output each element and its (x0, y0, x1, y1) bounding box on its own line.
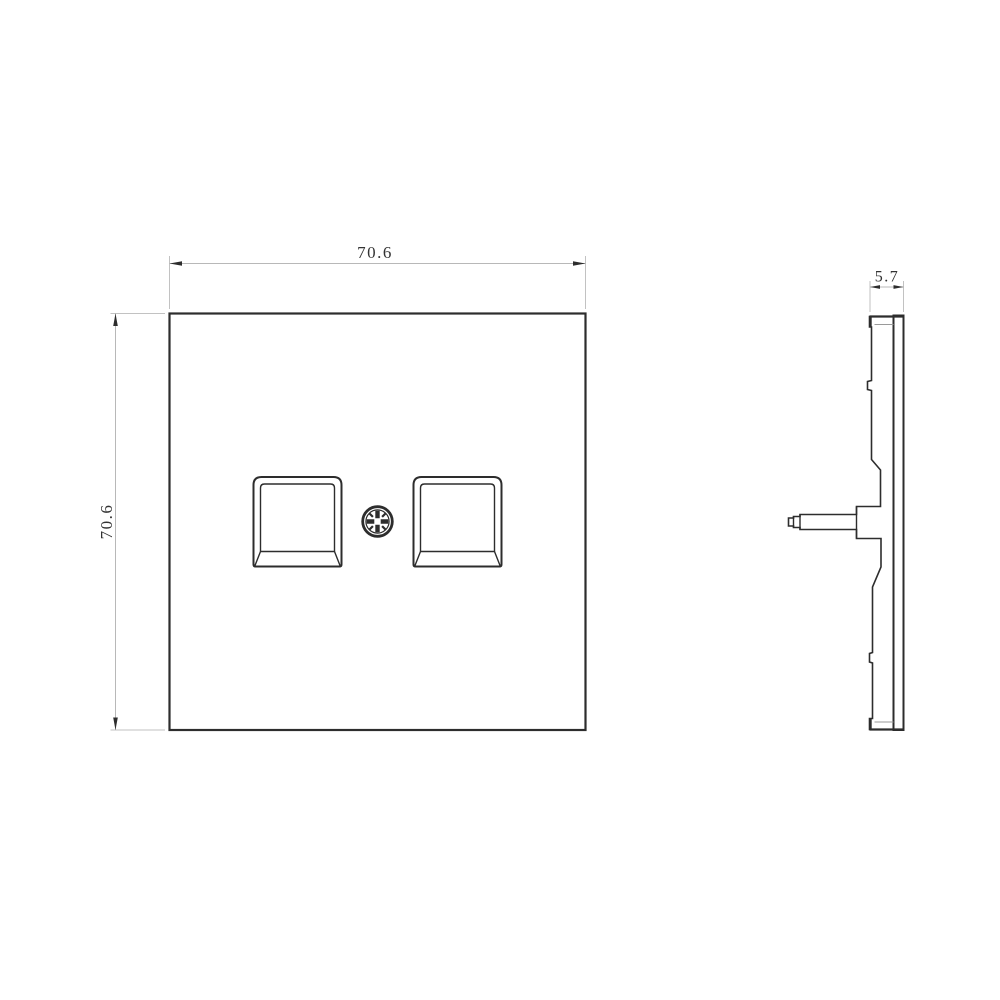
keystone-socket-left (254, 477, 342, 567)
side-back-profile (789, 317, 898, 730)
dimension-width: 70.6 (170, 243, 586, 309)
keystone-socket-right (414, 477, 502, 567)
width-dimension-label: 70.6 (357, 243, 393, 262)
technical-drawing-canvas: 70.6 70.6 (0, 0, 1000, 1000)
arrowhead-right-icon (894, 285, 904, 289)
arrowhead-right-icon (573, 261, 586, 266)
faceplate-drawing: 70.6 70.6 (0, 0, 1000, 1000)
height-dimension-label: 70.6 (97, 504, 116, 540)
side-front-face (894, 316, 904, 731)
arrowhead-left-icon (870, 285, 880, 289)
arrowhead-left-icon (170, 261, 183, 266)
dimension-height: 70.6 (97, 314, 165, 731)
faceplate-outline (170, 314, 586, 731)
side-view: 5.7 (789, 269, 905, 731)
arrowhead-up-icon (113, 314, 118, 327)
dimension-thickness: 5.7 (870, 269, 904, 313)
thickness-dimension-label: 5.7 (875, 269, 900, 286)
front-view: 70.6 70.6 (97, 243, 586, 730)
arrowhead-down-icon (113, 718, 118, 731)
